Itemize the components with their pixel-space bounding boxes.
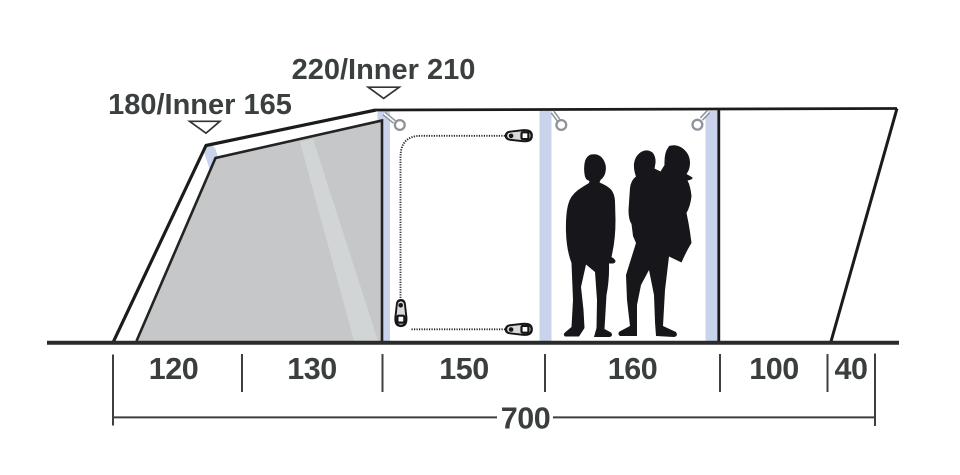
svg-text:180/Inner 165: 180/Inner 165 bbox=[108, 89, 292, 121]
svg-text:120: 120 bbox=[149, 352, 198, 386]
svg-text:220/Inner 210: 220/Inner 210 bbox=[292, 54, 476, 86]
svg-text:160: 160 bbox=[608, 352, 657, 386]
svg-text:150: 150 bbox=[439, 352, 488, 386]
svg-text:700: 700 bbox=[501, 402, 550, 436]
svg-text:40: 40 bbox=[835, 352, 868, 386]
svg-text:130: 130 bbox=[287, 352, 336, 386]
svg-text:100: 100 bbox=[749, 352, 798, 386]
